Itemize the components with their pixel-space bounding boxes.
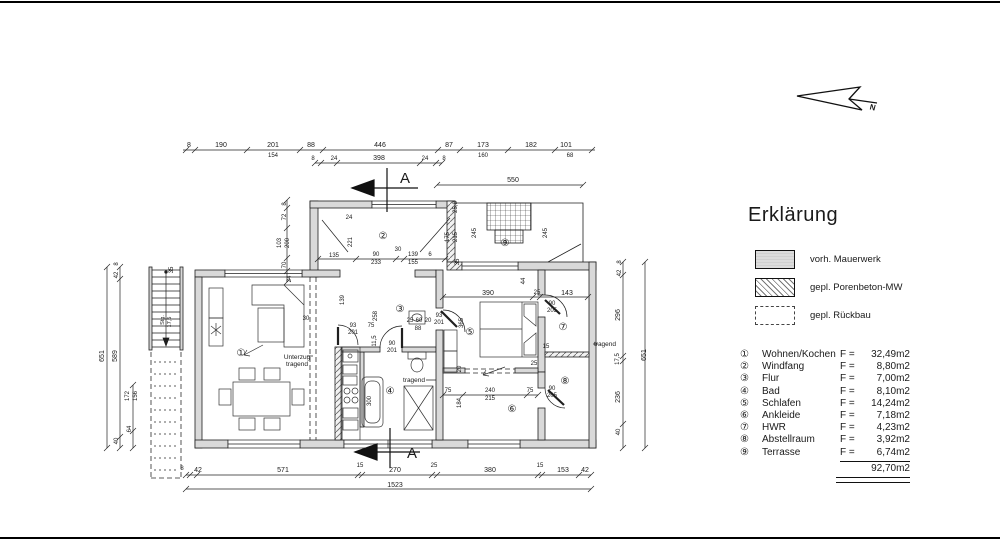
dim-label: 30	[303, 316, 310, 322]
legend-swatch-solid	[755, 250, 795, 269]
dim-label: 175	[445, 231, 451, 242]
chair	[264, 368, 280, 380]
dim-label: 365	[459, 317, 465, 328]
sofa	[252, 285, 304, 347]
dim-label: 300	[367, 395, 373, 406]
north-arrow: N	[797, 87, 877, 113]
area-prefix: F =	[840, 447, 864, 459]
dim-label: 30	[395, 247, 402, 253]
total-underline	[836, 477, 910, 483]
legend-item-label: gepl. Rückbau	[810, 310, 871, 321]
dim-label: 90	[389, 341, 396, 347]
dim-label: 236	[615, 391, 622, 403]
stairs	[152, 270, 180, 347]
sideboard	[209, 288, 223, 318]
room-marker: ⑦	[559, 322, 568, 333]
room-name: Ankleide	[762, 410, 840, 422]
room-name: Wohnen/Kochen	[762, 349, 840, 361]
plan-label: Unterzug	[284, 354, 311, 361]
dim-label: 240	[485, 388, 496, 394]
chair	[264, 418, 280, 430]
room-area: 7,18m2	[864, 410, 910, 422]
table-row: ⑧AbstellraumF =3,92m2	[740, 434, 910, 446]
table-row: ⑤SchlafenF =14,24m2	[740, 398, 910, 410]
dim-label: 8	[114, 262, 120, 266]
area-prefix: F =	[840, 422, 864, 434]
dim-label: 233	[371, 260, 382, 266]
dim-label: 75	[445, 388, 452, 394]
dim-label: 205	[547, 393, 558, 399]
plan-label: Stg.	[160, 315, 166, 325]
room-area: 32,49m2	[864, 349, 910, 361]
dim-label: 64	[127, 425, 133, 432]
area-prefix: F =	[840, 349, 864, 361]
dim-label: 201	[387, 348, 398, 354]
room-area: 14,24m2	[864, 398, 910, 410]
dim-label: 44	[521, 277, 527, 284]
room-area: 8,80m2	[864, 361, 910, 373]
dim-label: 42	[581, 467, 589, 474]
chair	[239, 368, 255, 380]
section-label: A	[407, 445, 417, 462]
dim-label: 154	[268, 153, 279, 159]
dim-label: 8	[311, 156, 315, 162]
door-layer	[322, 218, 567, 408]
dim-label: 24	[287, 275, 293, 282]
dim-label: 245	[472, 227, 478, 238]
dim-label: 24	[331, 156, 338, 162]
dim-label: 8	[617, 260, 623, 264]
room-marker: ③	[396, 304, 405, 315]
room-name: Schlafen	[762, 398, 840, 410]
room-marker: ⑥	[508, 404, 517, 415]
pillow	[524, 304, 536, 326]
room-area: 4,23m2	[864, 422, 910, 434]
dim-label: 215	[485, 396, 496, 402]
dim-label: 42	[194, 467, 202, 474]
dim-label: 139	[408, 252, 419, 258]
dim-label: 93	[436, 313, 443, 319]
room-name: Terrasse	[762, 447, 840, 459]
hob-burner	[344, 388, 350, 394]
dim-label: 296	[615, 309, 622, 321]
legend-item-rueckbau: gepl. Rückbau	[755, 306, 871, 325]
dim-label: 190	[215, 142, 227, 149]
dim-label: 155	[408, 260, 419, 266]
legend-item-porenbeton: gepl. Porenbeton-MW	[755, 278, 902, 297]
room-number: ⑥	[740, 410, 762, 422]
dim-label: 550	[507, 177, 519, 184]
dim-label: 200	[285, 237, 291, 248]
table-row: ⑦HWRF =4,23m2	[740, 422, 910, 434]
entry-arrow	[483, 367, 505, 376]
toilet	[411, 358, 423, 372]
area-prefix: F =	[840, 398, 864, 410]
area-prefix: F =	[840, 410, 864, 422]
dim-label: 103	[277, 237, 283, 248]
area-prefix: F =	[840, 434, 864, 446]
dim-label: 88	[307, 142, 315, 149]
dim-label: 70	[282, 261, 288, 268]
chair	[239, 418, 255, 430]
room-number: ⑧	[740, 434, 762, 446]
hob-burner	[344, 397, 350, 403]
dim-label: 40	[616, 428, 622, 435]
room-number: ②	[740, 361, 762, 373]
dim-label: 24	[422, 156, 429, 162]
room-number: ⑦	[740, 422, 762, 434]
dim-label: 651	[641, 349, 648, 361]
dim-label: 153	[557, 467, 569, 474]
dim-label: 446	[374, 142, 386, 149]
room-name: Flur	[762, 373, 840, 385]
dim-label: 172	[125, 390, 131, 401]
dim-label: 25	[407, 318, 414, 324]
room-name: Bad	[762, 386, 840, 398]
dim-label: 143	[561, 290, 573, 297]
table-row: ④BadF =8,10m2	[740, 386, 910, 398]
plan-label: tragend	[286, 361, 308, 368]
dim-label: 17,5	[615, 353, 621, 365]
room-marker: ⑤	[466, 327, 475, 338]
entry-arrow	[244, 345, 263, 356]
table-row: ②WindfangF =8,80m2	[740, 361, 910, 373]
room-area: 8,10m2	[864, 386, 910, 398]
dim-label: 93	[350, 323, 357, 329]
dim-label: 156	[133, 390, 139, 401]
furniture-layer	[209, 285, 538, 440]
door-swing-line	[322, 220, 348, 252]
room-number: ⑨	[740, 447, 762, 459]
room-name: HWR	[762, 422, 840, 434]
chair	[292, 389, 304, 405]
dim-label: 15	[357, 463, 364, 469]
pillow	[524, 333, 536, 355]
dim-label: 589	[112, 350, 119, 362]
room-number: ③	[740, 373, 762, 385]
dim-label: 221	[348, 236, 354, 247]
legend-swatch-dashed	[755, 306, 795, 325]
dim-label: 72	[282, 213, 288, 220]
table-row: ⑨TerrasseF =6,74m2	[740, 447, 910, 459]
area-prefix: F =	[840, 386, 864, 398]
dim-label: 245	[543, 227, 549, 238]
terrace-gate-line	[548, 244, 581, 262]
dim-label: 390	[482, 290, 494, 297]
dim-label: 25	[534, 290, 541, 296]
dim-label: 90	[549, 386, 556, 392]
page-border-bottom	[0, 537, 1000, 539]
dim-label: 15	[543, 344, 550, 350]
room-area: 7,00m2	[864, 373, 910, 385]
table-row: ⑥AnkleideF =7,18m2	[740, 410, 910, 422]
room-number: ⑤	[740, 398, 762, 410]
dim-label: 35	[455, 258, 461, 265]
room-number: ①	[740, 349, 762, 361]
room-marker: ①	[237, 348, 246, 359]
dim-label: 201	[267, 142, 279, 149]
area-prefix: F =	[840, 361, 864, 373]
total-row: 92,70m2	[740, 462, 910, 476]
room-name: Windfang	[762, 361, 840, 373]
section-label: A	[400, 170, 410, 187]
dining-table	[233, 382, 290, 416]
room-marker: ④	[386, 386, 395, 397]
dim-label: 20	[425, 318, 432, 324]
kitchen-sink	[343, 365, 357, 374]
dim-label: 182	[525, 142, 537, 149]
plan-label: tragend	[403, 377, 425, 384]
dim-label: 42	[114, 271, 120, 278]
room-area-table: ①Wohnen/KochenF =32,49m2 ②WindfangF =8,8…	[740, 349, 910, 483]
dim-label: 258	[373, 310, 379, 321]
dim-label: 68	[567, 153, 574, 159]
hob-burner	[352, 397, 358, 403]
dim-label: 160	[478, 153, 489, 159]
page-border-top	[0, 1, 1000, 3]
dim-label: 1523	[387, 482, 403, 489]
room-area: 6,74m2	[864, 447, 910, 459]
dim-label: 20	[457, 365, 463, 372]
plan-label: 17,5	[167, 317, 173, 328]
wardrobe	[444, 330, 457, 351]
dim-label: 201	[434, 320, 445, 326]
dim-label: 60	[416, 318, 423, 324]
total-area: 92,70m2	[740, 462, 910, 476]
plan-label: tragend	[594, 341, 616, 348]
coffee-table	[258, 308, 284, 342]
dim-label: 15	[537, 463, 544, 469]
dim-label: 25	[431, 463, 438, 469]
table-row: ③FlurF =7,00m2	[740, 373, 910, 385]
dim-label: 40	[114, 437, 120, 444]
room-area: 3,92m2	[864, 434, 910, 446]
dim-label: 42	[617, 269, 623, 276]
dim-label: 8	[442, 156, 446, 162]
floor-plan-page: A A N ① ② ③ ④ ⑤ ⑥ ⑦ ⑧ ⑨ 8 190	[0, 0, 1000, 541]
dim-label: 24	[346, 215, 353, 221]
dim-label: 201	[348, 330, 359, 336]
dim-label: 88	[415, 326, 422, 332]
dim-label: 135	[329, 253, 340, 259]
dim-label: 173	[477, 142, 489, 149]
dim-label: 25,8	[453, 201, 459, 213]
dim-label: 380	[484, 467, 496, 474]
legend-item-label: gepl. Porenbeton-MW	[810, 282, 902, 293]
dim-label: 8	[180, 466, 184, 472]
dim-label: 90	[549, 301, 556, 307]
room-marker: ⑧	[561, 376, 570, 387]
dim-label: 651	[99, 350, 106, 362]
dim-label: 139	[340, 294, 346, 305]
dim-label: 571	[277, 467, 289, 474]
dim-label: 11,5	[372, 335, 378, 347]
dim-label: 25	[531, 361, 538, 367]
dim-label: 205	[547, 308, 558, 314]
legend-item-mauerwerk: vorh. Mauerwerk	[755, 250, 881, 269]
room-number: ④	[740, 386, 762, 398]
dim-label: 215	[453, 231, 459, 242]
dim-label: 90	[373, 252, 380, 258]
legend-swatch-hatch	[755, 278, 795, 297]
dim-label: 8	[187, 142, 191, 149]
dim-label: 184	[457, 397, 463, 408]
chair	[219, 389, 231, 405]
table-row: ①Wohnen/KochenF =32,49m2	[740, 349, 910, 361]
bed	[480, 302, 538, 357]
dim-label: 35	[169, 266, 175, 273]
dim-label: 75	[368, 323, 375, 329]
plant	[211, 323, 221, 336]
legend-item-label: vorh. Mauerwerk	[810, 254, 881, 265]
dim-label: 270	[389, 467, 401, 474]
hob-burner	[352, 388, 358, 394]
legend-title: Erklärung	[748, 204, 838, 227]
dim-label: 87	[445, 142, 453, 149]
north-label: N	[869, 103, 877, 113]
dim-label: 75	[527, 388, 534, 394]
kitchen-sink	[343, 376, 357, 385]
dim-label: 398	[373, 155, 385, 162]
dim-label: 101	[560, 142, 572, 149]
area-prefix: F =	[840, 373, 864, 385]
room-name: Abstellraum	[762, 434, 840, 446]
room-marker: ②	[379, 231, 388, 242]
room-marker: ⑨	[501, 238, 510, 249]
dim-label: 6	[428, 252, 432, 258]
